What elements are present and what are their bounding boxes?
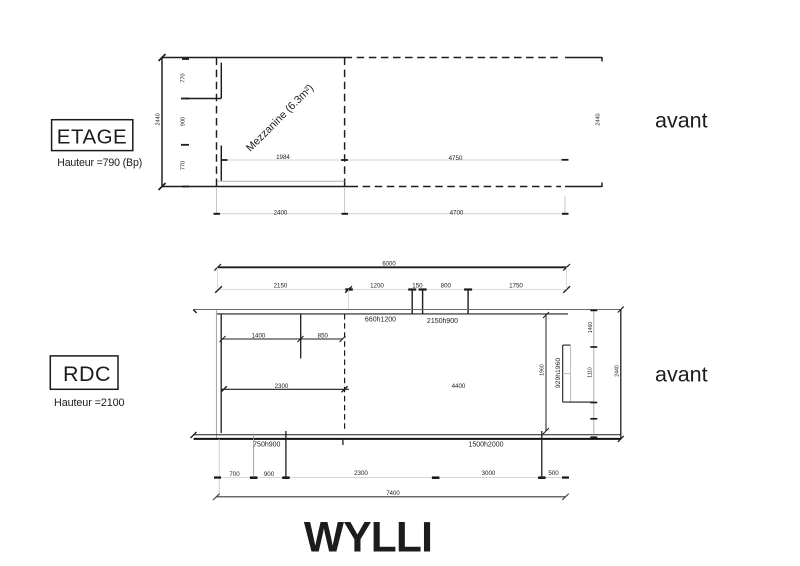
- svg-text:Hauteur =790 (Bp): Hauteur =790 (Bp): [57, 157, 142, 169]
- svg-text:4700: 4700: [450, 210, 464, 217]
- svg-text:RDC: RDC: [63, 362, 111, 386]
- svg-text:660h1200: 660h1200: [365, 317, 396, 324]
- svg-text:770: 770: [181, 73, 187, 82]
- svg-text:2150h900: 2150h900: [427, 318, 458, 325]
- svg-text:1984: 1984: [276, 154, 290, 161]
- svg-text:1400: 1400: [252, 333, 266, 340]
- svg-text:2440: 2440: [596, 113, 602, 125]
- svg-text:Mezzanine (6.3m²): Mezzanine (6.3m²): [244, 82, 316, 154]
- svg-text:6000: 6000: [382, 262, 396, 268]
- svg-text:750h900: 750h900: [253, 442, 280, 449]
- svg-text:1960: 1960: [540, 364, 546, 376]
- svg-text:2150: 2150: [274, 283, 288, 290]
- svg-text:1460: 1460: [588, 322, 594, 333]
- svg-text:1200: 1200: [370, 283, 384, 290]
- svg-text:150: 150: [412, 283, 423, 290]
- svg-text:929h1960: 929h1960: [555, 358, 562, 388]
- svg-text:avant: avant: [655, 362, 708, 386]
- svg-text:WYLLI: WYLLI: [304, 515, 432, 562]
- svg-text:7400: 7400: [386, 491, 400, 497]
- svg-text:850: 850: [318, 333, 329, 340]
- svg-text:ETAGE: ETAGE: [57, 126, 127, 149]
- svg-text:770: 770: [181, 161, 187, 170]
- svg-text:1500h2000: 1500h2000: [468, 442, 503, 449]
- svg-text:2300: 2300: [275, 383, 289, 390]
- svg-text:2300: 2300: [354, 470, 368, 477]
- svg-text:2440: 2440: [615, 365, 621, 377]
- svg-text:4750: 4750: [449, 155, 463, 162]
- svg-text:900: 900: [181, 117, 187, 126]
- svg-text:4400: 4400: [452, 383, 466, 390]
- svg-text:800: 800: [441, 283, 452, 290]
- svg-text:900: 900: [264, 471, 275, 478]
- svg-text:700: 700: [229, 471, 240, 478]
- svg-text:Hauteur =2100: Hauteur =2100: [54, 397, 125, 409]
- svg-text:1750: 1750: [509, 283, 523, 290]
- svg-text:1110: 1110: [588, 367, 594, 378]
- svg-text:avant: avant: [655, 109, 708, 133]
- svg-text:2440: 2440: [156, 113, 162, 125]
- svg-text:3000: 3000: [482, 470, 496, 477]
- svg-text:2400: 2400: [274, 210, 288, 217]
- svg-text:500: 500: [548, 470, 559, 477]
